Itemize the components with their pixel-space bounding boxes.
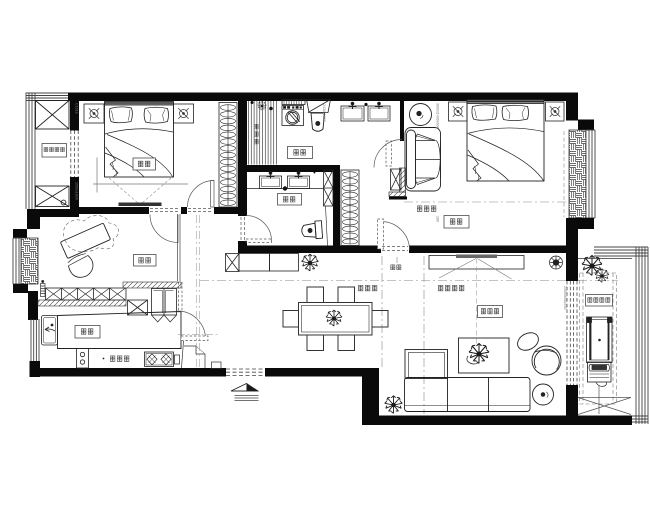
svg-text:280: 280 bbox=[436, 216, 440, 222]
svg-text:600: 600 bbox=[36, 240, 40, 246]
svg-text:2430x1260: 2430x1260 bbox=[322, 104, 326, 122]
svg-text:C1518: C1518 bbox=[75, 103, 79, 114]
svg-text:3600x1400x600: 3600x1400x600 bbox=[436, 103, 440, 129]
svg-text:2400x600x450: 2400x600x450 bbox=[563, 286, 567, 310]
svg-text:1500x1800: 1500x1800 bbox=[75, 182, 79, 200]
